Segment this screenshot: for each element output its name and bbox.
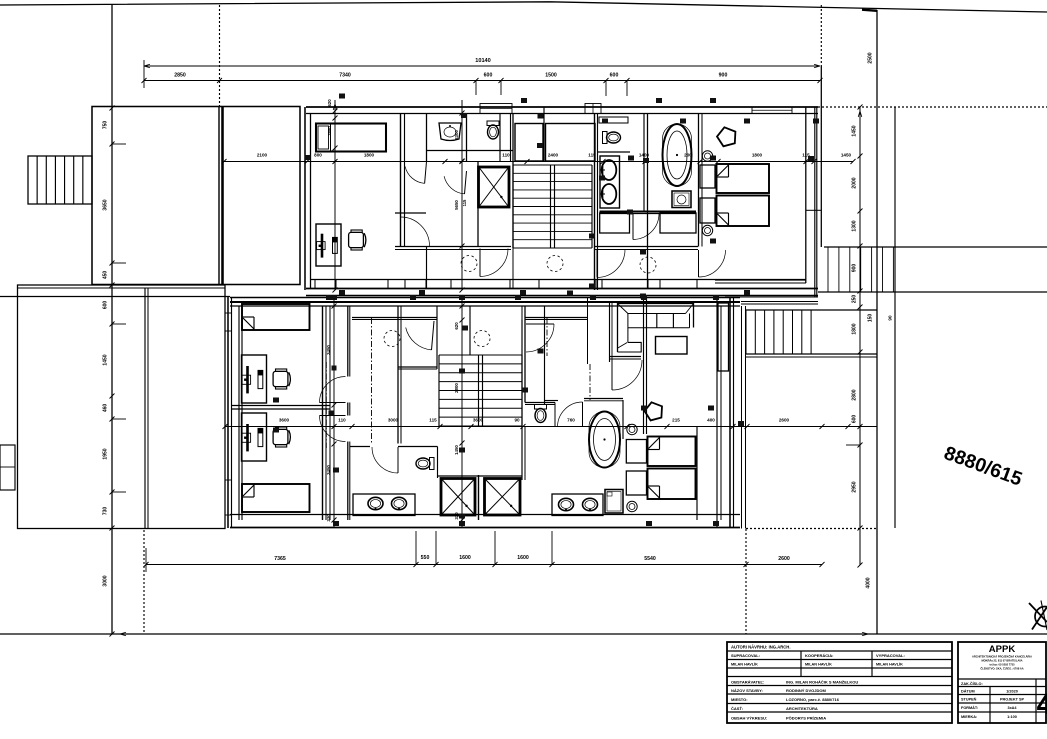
svg-text:2600: 2600 — [778, 556, 790, 562]
svg-text:2100: 2100 — [257, 153, 268, 158]
svg-text:ING. MILAN ROHÁČIK S MANŽELKOU: ING. MILAN ROHÁČIK S MANŽELKOU — [786, 680, 858, 685]
svg-text:2800: 2800 — [454, 383, 459, 393]
svg-text:5650: 5650 — [454, 200, 459, 210]
svg-text:ARCHITEKTÚRA: ARCHITEKTÚRA — [786, 706, 818, 711]
svg-text:1500: 1500 — [545, 73, 557, 79]
svg-text:900: 900 — [719, 73, 728, 79]
svg-text:115: 115 — [429, 418, 437, 423]
svg-text:750: 750 — [103, 121, 109, 130]
svg-text:3000: 3000 — [103, 575, 109, 586]
svg-text:90: 90 — [514, 418, 520, 423]
svg-text:1600: 1600 — [459, 555, 471, 561]
svg-text:400: 400 — [707, 418, 715, 423]
svg-text:MILAN HAVLÍK: MILAN HAVLÍK — [805, 662, 832, 667]
svg-text:1800: 1800 — [364, 153, 375, 158]
svg-text:1600: 1600 — [517, 555, 529, 561]
svg-text:7365: 7365 — [274, 556, 286, 562]
svg-text:PROJEKT SP: PROJEKT SP — [1000, 698, 1025, 702]
svg-text:600: 600 — [103, 301, 109, 310]
svg-text:3600: 3600 — [279, 418, 290, 423]
svg-text:2850: 2850 — [174, 73, 186, 79]
svg-text:3xA4: 3xA4 — [1007, 706, 1017, 710]
svg-text:10140: 10140 — [475, 58, 491, 64]
svg-text:MILAN HAVLÍK: MILAN HAVLÍK — [731, 662, 758, 667]
svg-text:1:100: 1:100 — [1007, 715, 1017, 719]
svg-text:NÁZOV STAVBY:: NÁZOV STAVBY: — [731, 688, 763, 693]
svg-text:1450: 1450 — [103, 354, 109, 365]
svg-text:450: 450 — [103, 271, 109, 280]
svg-text:7340: 7340 — [339, 73, 351, 79]
svg-text:MIERKA:: MIERKA: — [961, 715, 977, 719]
svg-text:250: 250 — [852, 295, 858, 304]
svg-text:PÔDORYS PRÍZEMIA: PÔDORYS PRÍZEMIA — [786, 716, 826, 721]
svg-text:1450: 1450 — [841, 153, 852, 158]
svg-text:RODINNÝ DVOJDOM: RODINNÝ DVOJDOM — [786, 688, 826, 693]
svg-text:OBSAH VÝKRESU:: OBSAH VÝKRESU: — [731, 716, 767, 721]
svg-text:2000: 2000 — [852, 177, 858, 188]
svg-text:150: 150 — [868, 314, 874, 323]
svg-text:2500: 2500 — [868, 52, 874, 63]
svg-text:550: 550 — [421, 555, 430, 561]
svg-text:600: 600 — [610, 73, 619, 79]
svg-text:4: 4 — [1037, 688, 1047, 721]
svg-text:1800: 1800 — [852, 323, 858, 334]
svg-text:1800: 1800 — [752, 153, 763, 158]
svg-text:730: 730 — [103, 507, 109, 516]
svg-text:FORMÁT:: FORMÁT: — [961, 705, 978, 710]
svg-text:VYPRACOVAL:: VYPRACOVAL: — [876, 653, 905, 658]
svg-text:5540: 5540 — [644, 556, 656, 562]
svg-text:90: 90 — [888, 315, 893, 321]
svg-text:MIESTO:: MIESTO: — [731, 697, 748, 702]
svg-text:2880: 2880 — [327, 126, 332, 136]
svg-text:460: 460 — [103, 404, 109, 413]
svg-text:900: 900 — [852, 264, 858, 273]
svg-text:SUPRACOVAL:: SUPRACOVAL: — [731, 653, 760, 658]
svg-text:115: 115 — [462, 199, 467, 206]
svg-text:AUTORI NÁVRHU: ING.ARCH.: AUTORI NÁVRHU: ING.ARCH. — [731, 645, 790, 650]
svg-text:ZAK.ČÍSLO:: ZAK.ČÍSLO: — [961, 681, 983, 686]
svg-text:760: 760 — [567, 418, 575, 423]
svg-text:2600: 2600 — [779, 418, 790, 423]
svg-text:2800: 2800 — [852, 389, 858, 400]
svg-text:110: 110 — [338, 418, 346, 423]
svg-text:2400: 2400 — [548, 153, 559, 158]
svg-text:tel.fax: 02-5292 7735: tel.fax: 02-5292 7735 — [989, 663, 1015, 667]
svg-text:DÁTUM: DÁTUM — [961, 689, 975, 694]
svg-text:4000: 4000 — [866, 577, 872, 588]
svg-text:600: 600 — [852, 415, 858, 424]
svg-text:1450: 1450 — [852, 125, 858, 136]
svg-text:APPK: APPK — [989, 644, 1016, 655]
svg-text:2950: 2950 — [852, 481, 858, 492]
svg-text:MILAN HAVLÍK: MILAN HAVLÍK — [876, 662, 903, 667]
svg-text:620: 620 — [327, 99, 332, 107]
svg-text:1300: 1300 — [852, 220, 858, 231]
svg-text:KOOPERÁCIA:: KOOPERÁCIA: — [805, 653, 833, 658]
svg-text:ČASŤ:: ČASŤ: — [731, 706, 743, 711]
svg-text:3000: 3000 — [388, 418, 399, 423]
svg-text:LOZORNO, parc.č. 8880/716: LOZORNO, parc.č. 8880/716 — [786, 697, 840, 702]
svg-text:STUPEŇ: STUPEŇ — [961, 697, 977, 702]
svg-text:1/2020: 1/2020 — [1006, 690, 1018, 694]
svg-text:600: 600 — [484, 73, 493, 79]
svg-text:620: 620 — [454, 322, 459, 330]
svg-text:OBSTARÁVATEĽ:: OBSTARÁVATEĽ: — [731, 680, 764, 685]
svg-text:110: 110 — [502, 153, 510, 158]
svg-text:215: 215 — [672, 418, 680, 423]
svg-text:1450: 1450 — [454, 445, 459, 455]
svg-text:3650: 3650 — [103, 199, 109, 210]
svg-text:1950: 1950 — [103, 448, 109, 459]
svg-text:800: 800 — [314, 153, 322, 158]
